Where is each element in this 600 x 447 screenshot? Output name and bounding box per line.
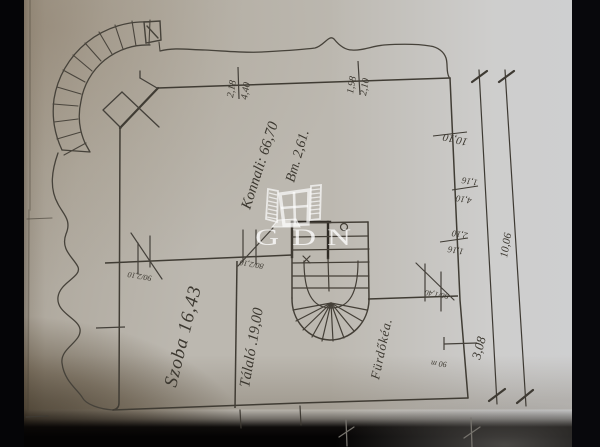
- svg-text:Tálaló .19,00: Tálaló .19,00: [237, 306, 267, 388]
- svg-text:1,16: 1,16: [447, 244, 465, 257]
- svg-text:4,10: 4,10: [455, 193, 473, 206]
- svg-text:N: N: [327, 225, 351, 251]
- svg-text:10,10: 10,10: [441, 130, 468, 147]
- svg-text:90/1,40: 90/1,40: [424, 288, 449, 301]
- svg-text:2,18: 2,18: [225, 79, 239, 98]
- svg-text:Bm. 2,61.: Bm. 2,61.: [283, 128, 312, 184]
- svg-text:90 m: 90 m: [430, 359, 447, 369]
- svg-text:3,08: 3,08: [468, 334, 489, 361]
- svg-text:Fürdőkéa.: Fürdőkéa.: [367, 317, 395, 382]
- svg-text:Szoba 16,43: Szoba 16,43: [160, 283, 206, 389]
- svg-text:80/2,10: 80/2,10: [239, 258, 264, 271]
- svg-text:G: G: [255, 225, 279, 251]
- svg-text:1,98: 1,98: [345, 75, 359, 94]
- svg-text:90/2,10: 90/2,10: [127, 270, 152, 283]
- svg-text:10,06: 10,06: [498, 232, 514, 259]
- svg-text:2,10: 2,10: [358, 77, 372, 96]
- svg-text:4,40: 4,40: [239, 81, 253, 100]
- svg-text:D: D: [292, 225, 316, 251]
